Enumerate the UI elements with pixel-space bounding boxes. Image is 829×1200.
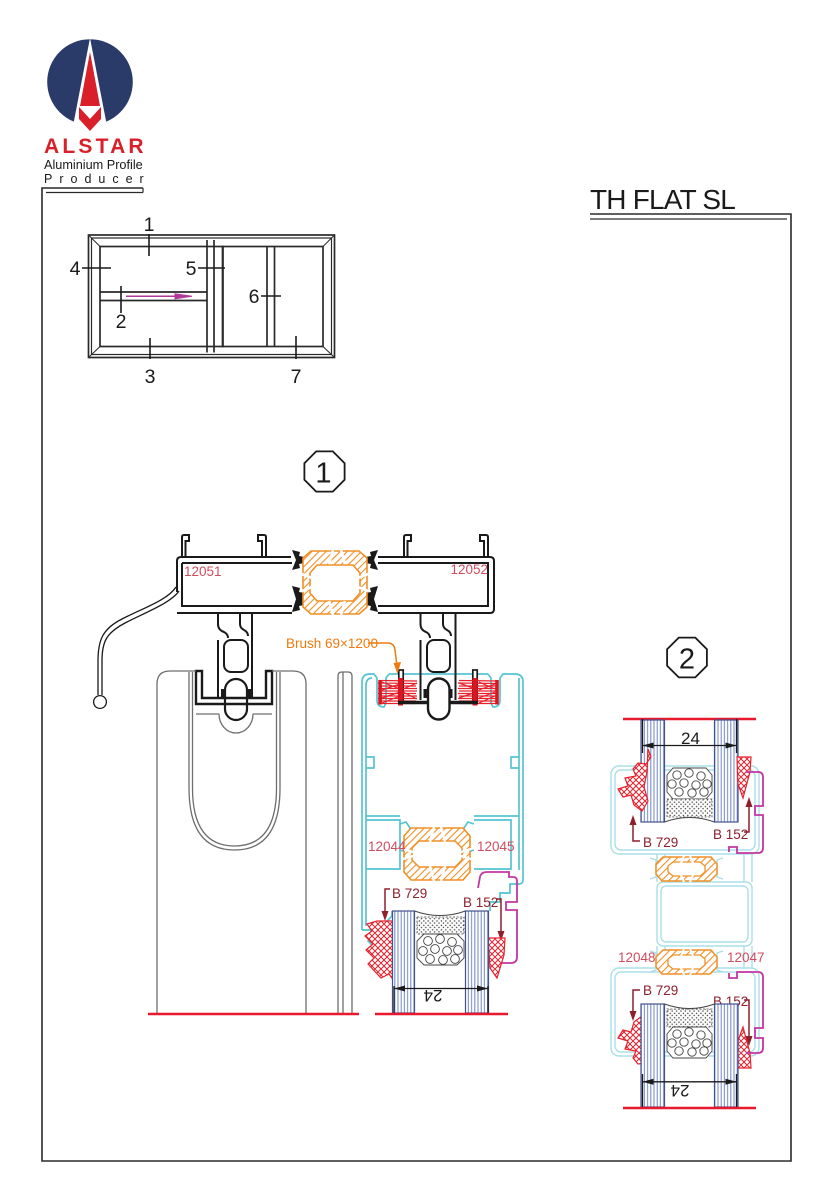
svg-text:7: 7: [291, 366, 302, 388]
svg-text:B 729: B 729: [643, 835, 678, 850]
svg-text:24: 24: [681, 729, 700, 748]
svg-text:6: 6: [249, 286, 260, 308]
svg-text:5: 5: [186, 258, 197, 280]
svg-text:2: 2: [679, 644, 695, 676]
svg-text:2: 2: [116, 311, 127, 333]
svg-text:Producer: Producer: [44, 172, 151, 186]
svg-text:12052: 12052: [450, 562, 488, 577]
svg-text:24: 24: [671, 1081, 690, 1100]
svg-text:B 729: B 729: [392, 886, 427, 901]
svg-text:4: 4: [70, 258, 81, 280]
svg-text:TH FLAT SL: TH FLAT SL: [590, 184, 735, 215]
svg-text:Aluminium Profile: Aluminium Profile: [44, 158, 143, 172]
svg-text:12048: 12048: [618, 950, 656, 965]
svg-text:1: 1: [315, 458, 331, 490]
svg-text:Brush 69×1200: Brush 69×1200: [286, 636, 378, 651]
svg-text:B 152: B 152: [463, 895, 498, 910]
svg-text:12045: 12045: [477, 839, 515, 854]
svg-text:B 729: B 729: [643, 983, 678, 998]
svg-text:1: 1: [144, 214, 155, 236]
svg-text:B 152: B 152: [713, 827, 748, 842]
svg-text:ALSTAR: ALSTAR: [44, 135, 147, 158]
svg-text:12051: 12051: [184, 564, 222, 579]
svg-text:12044: 12044: [368, 839, 406, 854]
svg-text:24: 24: [424, 986, 443, 1005]
svg-text:3: 3: [145, 366, 156, 388]
svg-text:12047: 12047: [727, 950, 765, 965]
